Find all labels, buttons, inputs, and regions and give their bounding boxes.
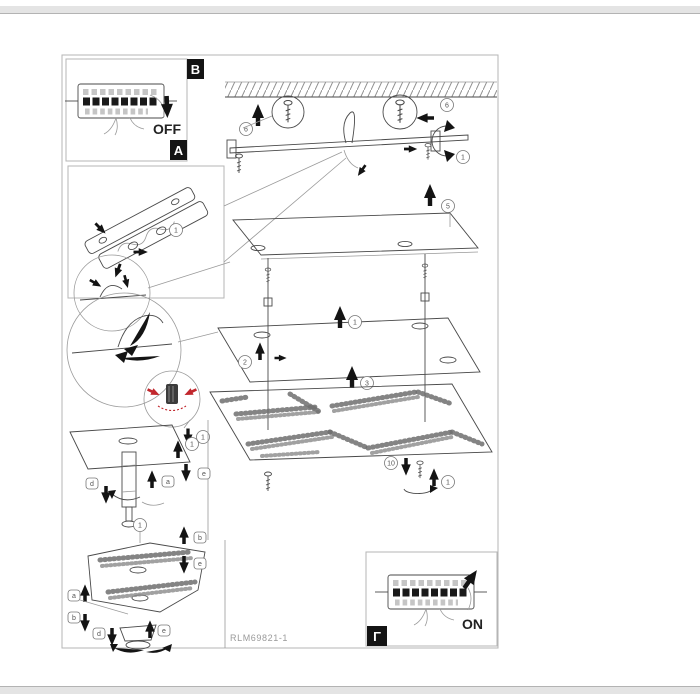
callout-bracket-box: 1 (174, 228, 178, 235)
cable-clamp-illustration (166, 384, 178, 404)
drawing-number: RLM69821-1 (230, 633, 288, 643)
off-label: OFF (153, 121, 181, 137)
callout-fixture-left-down: b (72, 615, 76, 622)
callout-fixture-right-down: e (198, 561, 202, 568)
manual-page: OFF B A 1 (0, 0, 700, 700)
callout-post-left: d (90, 481, 94, 488)
instruction-diagram: OFF B A 1 (0, 0, 700, 700)
callout-post-top: 1 (190, 442, 194, 449)
callout-fixture-base-left: d (97, 631, 101, 638)
callout-post-mid: a (166, 479, 170, 486)
callout-plate-side: 2 (243, 360, 247, 367)
step-c-label: Γ (373, 629, 381, 644)
callout-fixture-top: 1 (138, 523, 142, 530)
callout-cable-clamp: 1 (201, 435, 205, 442)
callout-fixture-right-up: b (198, 535, 202, 542)
callout-fixture-base-right: e (162, 628, 166, 635)
off-switch-panel: OFF B A (65, 59, 204, 161)
callout-plate-up: 1 (353, 320, 357, 327)
callout-decor-screw: 10 (387, 461, 395, 468)
callout-canopy: 5 (446, 204, 450, 211)
callout-top-right: 6 (445, 103, 449, 110)
callout-decor-turn: 1 (446, 480, 450, 487)
callout-post-right: e (202, 471, 206, 478)
step-b-label: B (191, 62, 200, 77)
on-label: ON (462, 616, 483, 632)
callout-turn-right: 1 (461, 155, 465, 162)
on-switch-panel: ON Γ (366, 552, 497, 646)
callout-fixture-left-up: a (72, 593, 76, 600)
step-a-label: A (174, 143, 184, 158)
